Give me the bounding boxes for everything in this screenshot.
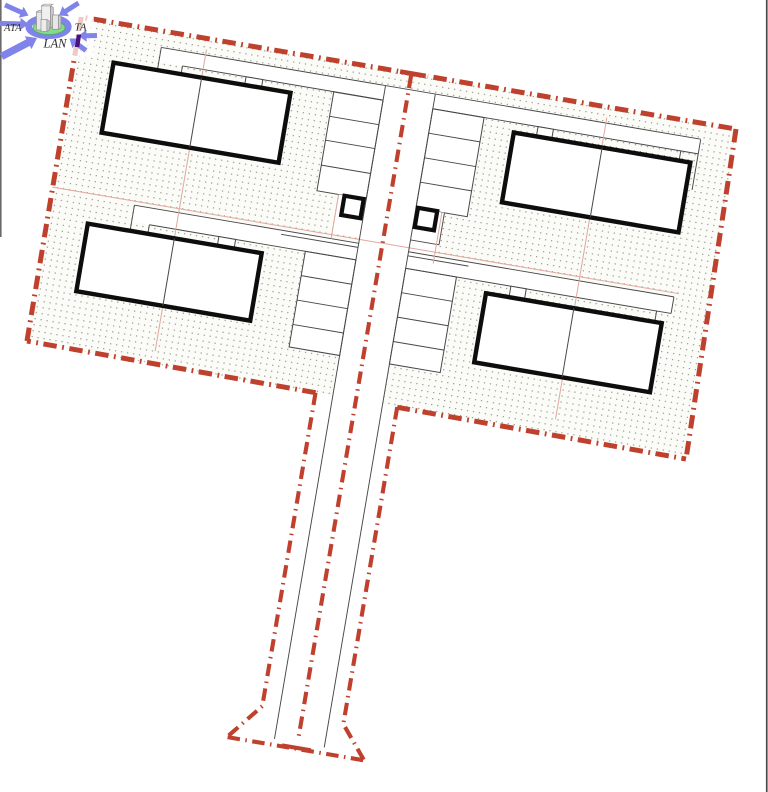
svg-text:ATA: ATA: [3, 23, 22, 34]
svg-text:TA: TA: [75, 22, 87, 34]
svg-text:LAN: LAN: [43, 37, 68, 51]
